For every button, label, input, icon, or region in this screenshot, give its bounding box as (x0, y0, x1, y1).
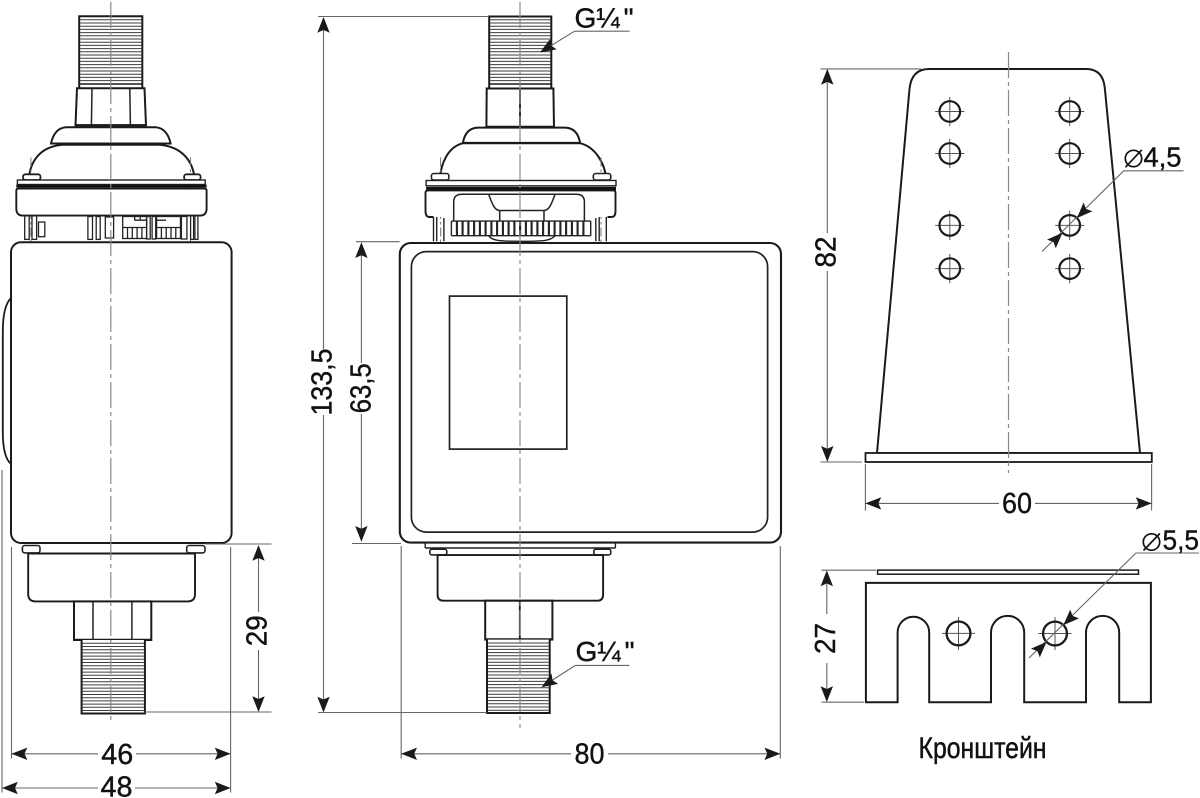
svg-text:27: 27 (810, 623, 842, 654)
svg-text:63,5: 63,5 (345, 363, 377, 413)
svg-text:80: 80 (575, 738, 605, 770)
svg-text:G¼": G¼" (575, 2, 634, 33)
svg-text:29: 29 (241, 615, 273, 646)
svg-text:5,5: 5,5 (1163, 525, 1200, 556)
svg-text:133,5: 133,5 (307, 349, 339, 416)
svg-text:60: 60 (1002, 488, 1032, 520)
svg-text:46: 46 (101, 739, 133, 771)
svg-text:Кронштейн: Кронштейн (919, 732, 1047, 765)
svg-text:48: 48 (101, 771, 133, 798)
svg-text:G¼": G¼" (576, 636, 635, 667)
svg-text:82: 82 (810, 237, 842, 268)
svg-text:4,5: 4,5 (1144, 141, 1182, 172)
